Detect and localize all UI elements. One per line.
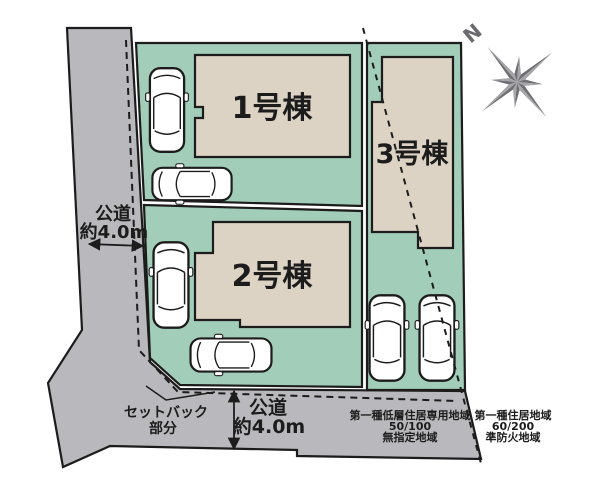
road-left-width-label: 約4.0m	[80, 221, 149, 243]
site-plan: 1号棟 2号棟 3号棟 公道 約4.0m 公道 約4.0m セットバック 部分 …	[0, 0, 600, 493]
building-3-label: 3号棟	[376, 139, 450, 170]
setback-label-line2: 部分	[149, 420, 177, 437]
car-plot3-left	[365, 295, 409, 380]
car-plot1-upper	[146, 68, 189, 152]
svg-text:無指定地域: 無指定地域	[383, 430, 438, 444]
building-2-label: 2号棟	[232, 259, 314, 294]
road-bottom-width-label: 約4.0m	[233, 415, 305, 438]
car-plot3-right	[415, 295, 459, 380]
car-plot1-lower	[152, 164, 231, 205]
svg-text:準防火地域: 準防火地域	[486, 430, 541, 444]
car-plot2-upper	[149, 242, 193, 327]
car-plot2-lower	[191, 334, 272, 375]
setback-label-line1: セットバック	[124, 405, 208, 421]
building-1-label: 1号棟	[232, 91, 314, 126]
